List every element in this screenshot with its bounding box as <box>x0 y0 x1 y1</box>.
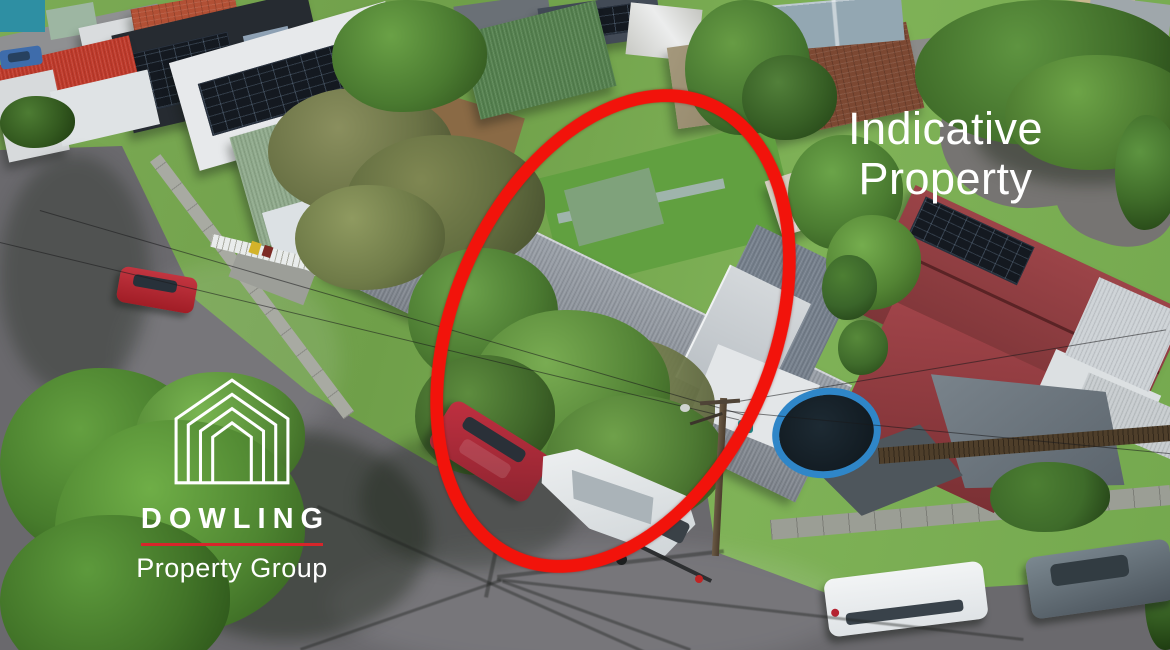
logo-tagline: Property Group <box>108 553 356 584</box>
watermark-line2: Property <box>808 154 1083 204</box>
logo-wordmark: DOWLING <box>108 503 356 536</box>
watermark-line1: Indicative <box>808 104 1083 154</box>
agency-logo: DOWLING Property Group <box>108 376 356 584</box>
logo-divider <box>141 543 323 546</box>
nested-house-outline-icon <box>171 376 293 488</box>
tree-canopy <box>1115 115 1170 230</box>
trailer-flag <box>695 575 703 583</box>
watermark-text: Indicative Property <box>808 104 1083 205</box>
aerial-property-photo: Indicative Property DOWLING Property Gro… <box>0 0 1170 650</box>
teal-shed-corner <box>0 0 45 32</box>
hatchback-roof-glass <box>1050 554 1130 587</box>
